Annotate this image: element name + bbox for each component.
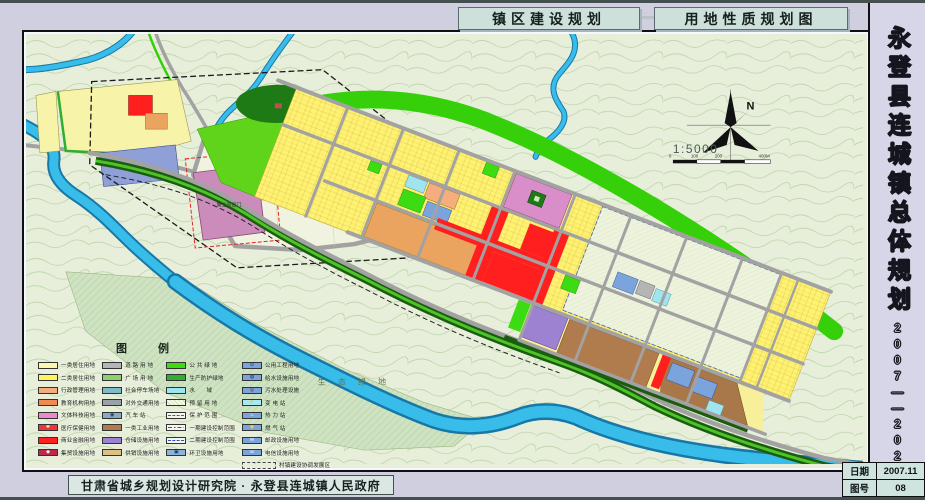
legend-item: ✚医疗保健用地 xyxy=(38,424,95,432)
legend-item: 教育机构用地 xyxy=(38,399,95,407)
svg-text:100: 100 xyxy=(691,153,699,158)
date-value: 2007.11 xyxy=(876,462,925,480)
legend-item: 社会停车场地 xyxy=(102,386,159,394)
legend-label: 供销设施用地 xyxy=(125,449,159,457)
legend-line-sample xyxy=(168,427,184,429)
legend-swatch xyxy=(102,374,122,381)
legend-swatch: ◉ xyxy=(102,412,122,419)
legend-glyph-icon: ◍ xyxy=(250,375,254,380)
legend-swatch: ◆ xyxy=(38,449,58,456)
legend-item: ⊙公用工程用地 xyxy=(242,361,330,369)
legend-item: ♨热 力 站 xyxy=(242,411,330,419)
credit-text: 甘肃省城乡规划设计研究院 · 永登县连城镇人民政府 xyxy=(81,477,381,494)
legend-glyph-icon: ☏ xyxy=(249,450,255,455)
legend-label: 邮政设施用地 xyxy=(265,436,299,444)
date-label: 日期 xyxy=(842,462,877,480)
legend-swatch xyxy=(166,424,186,431)
title-right-text: 用地性质规划图 xyxy=(685,9,818,29)
legend-label: 广 场 用 地 xyxy=(125,374,153,382)
legend-swatch xyxy=(242,462,276,469)
legend-title: 图 例 xyxy=(116,340,338,356)
legend-label: 一期建设控制范围 xyxy=(189,424,235,432)
title-left-text: 镇区建设规划 xyxy=(492,9,606,29)
legend-item: 一类工业用地 xyxy=(102,424,159,432)
legend-item: 一类居住用地 xyxy=(38,361,95,369)
legend-item: 预 留 用 地 xyxy=(166,399,235,407)
legend-label: 公 共 绿 地 xyxy=(189,361,217,369)
legend-swatch xyxy=(166,437,186,444)
legend-glyph-icon: ◆ xyxy=(46,450,50,455)
sheet-top-edge xyxy=(0,0,925,3)
legend-item: 生产防护绿地 xyxy=(166,374,235,382)
legend-glyph-icon: ✚ xyxy=(46,425,50,430)
legend-swatch xyxy=(166,399,186,406)
svg-text:200: 200 xyxy=(715,153,723,158)
legend-swatch: ⊙ xyxy=(242,362,262,369)
legend-item: 道 路 用 地 xyxy=(102,361,159,369)
legend-label: 村镇建设协调发展区 xyxy=(279,461,330,469)
legend-label: 商业金融用地 xyxy=(61,436,95,444)
legend-label: 燃 气 站 xyxy=(265,424,286,432)
legend-label: 行政管理用地 xyxy=(61,386,95,394)
legend-label: 生产防护绿地 xyxy=(189,374,223,382)
legend-label: 环卫设施用地 xyxy=(189,449,223,457)
legend-glyph-icon: ◉ xyxy=(250,425,254,430)
legend-item: ✉邮政设施用地 xyxy=(242,436,330,444)
legend-swatch xyxy=(102,362,122,369)
legend-label: 对外交通用地 xyxy=(125,399,159,407)
legend-label: 汽 车 站 xyxy=(125,411,146,419)
legend-columns: 一类居住用地二类居住用地行政管理用地教育机构用地文体科技用地✚医疗保健用地商业金… xyxy=(38,361,338,469)
legend-swatch: ♨ xyxy=(242,412,262,419)
drawing-sheet: 镇区建设规划 用地性质规划图 xyxy=(0,0,925,500)
legend-label: 教育机构用地 xyxy=(61,399,95,407)
legend-item: 二期建设控制范围 xyxy=(166,436,235,444)
legend-label: 仓储设施用地 xyxy=(125,436,159,444)
legend-swatch xyxy=(166,387,186,394)
legend-glyph-icon: ⊙ xyxy=(250,363,254,368)
legend-glyph-icon: ◉ xyxy=(110,413,114,418)
legend-label: 社会停车场地 xyxy=(125,386,159,394)
legend-item: 保 护 范 围 xyxy=(166,411,235,419)
legend-item: 文体科技用地 xyxy=(38,411,95,419)
legend-glyph-icon: ◎ xyxy=(250,388,254,393)
legend-item: 广 场 用 地 xyxy=(102,374,159,382)
legend-item: ⚡变 电 站 xyxy=(242,399,330,407)
sheet-number-value: 08 xyxy=(876,479,925,497)
legend-label: 热 力 站 xyxy=(265,411,286,419)
legend-item: 商业金融用地 xyxy=(38,436,95,444)
legend-swatch xyxy=(38,399,58,406)
legend-item: 村镇建设协调发展区 xyxy=(242,461,330,469)
legend-swatch: ◎ xyxy=(242,387,262,394)
legend-swatch xyxy=(38,374,58,381)
legend-swatch xyxy=(166,412,186,419)
legend-glyph-icon: ✉ xyxy=(250,438,254,443)
sidebar-plan-title: 永登县连城镇总体规划 xyxy=(881,26,915,316)
legend-swatch xyxy=(102,387,122,394)
legend-label: 公用工程用地 xyxy=(265,361,299,369)
legend-swatch xyxy=(38,437,58,444)
legend-item: 二类居住用地 xyxy=(38,374,95,382)
legend-item: ◎污水处理设施 xyxy=(242,386,330,394)
sidebar-plan-period: 2007——2020 xyxy=(891,321,905,481)
legend-swatch xyxy=(38,387,58,394)
legend-swatch xyxy=(102,399,122,406)
legend-label: 给水设施用地 xyxy=(265,374,299,382)
legend-swatch: ▣ xyxy=(166,449,186,456)
credit-box: 甘肃省城乡规划设计研究院 · 永登县连城镇人民政府 xyxy=(68,475,394,495)
legend-item: ◍给水设施用地 xyxy=(242,374,330,382)
legend-swatch xyxy=(166,362,186,369)
legend-item: ◆集贸设施用地 xyxy=(38,449,95,457)
legend-item: 行政管理用地 xyxy=(38,386,95,394)
legend-label: 预 留 用 地 xyxy=(189,399,217,407)
legend-swatch: ✉ xyxy=(242,437,262,444)
legend-item: ▣环卫设施用地 xyxy=(166,449,235,457)
title-left: 镇区建设规划 xyxy=(458,7,640,30)
legend-item: ◉汽 车 站 xyxy=(102,411,159,419)
legend-item: 对外交通用地 xyxy=(102,399,159,407)
legend-glyph-icon: ♨ xyxy=(250,413,254,418)
legend-column: 一类居住用地二类居住用地行政管理用地教育机构用地文体科技用地✚医疗保健用地商业金… xyxy=(38,361,95,469)
sheet-number-label: 图号 xyxy=(842,479,877,497)
legend-item: 公 共 绿 地 xyxy=(166,361,235,369)
legend-swatch: ✚ xyxy=(38,424,58,431)
legend-label: 水 域 xyxy=(189,386,212,394)
legend-line-sample xyxy=(168,415,184,416)
legend-item: 水 域 xyxy=(166,386,235,394)
legend-swatch: ◉ xyxy=(242,424,262,431)
legend-glyph-icon: ▣ xyxy=(174,450,179,455)
legend-column: ⊙公用工程用地◍给水设施用地◎污水处理设施⚡变 电 站♨热 力 站◉燃 气 站✉… xyxy=(242,361,330,469)
legend-glyph-icon: ⚡ xyxy=(249,400,255,405)
legend-item: 仓储设施用地 xyxy=(102,436,159,444)
legend-item: ◉燃 气 站 xyxy=(242,424,330,432)
title-block-sheet-row: 图号 08 xyxy=(843,480,925,497)
legend-label: 电信设施用地 xyxy=(265,449,299,457)
legend-label: 二期建设控制范围 xyxy=(189,436,235,444)
legend-label: 变 电 站 xyxy=(265,399,286,407)
title-block-date-row: 日期 2007.11 xyxy=(843,463,925,480)
legend-swatch: ☏ xyxy=(242,449,262,456)
title-connector xyxy=(638,16,654,19)
legend-label: 文体科技用地 xyxy=(61,411,95,419)
legend-swatch xyxy=(102,449,122,456)
svg-text:400M: 400M xyxy=(758,153,769,158)
legend-item: 供销设施用地 xyxy=(102,449,159,457)
north-label: N xyxy=(747,100,755,112)
legend-label: 集贸设施用地 xyxy=(61,449,95,457)
legend-swatch xyxy=(102,437,122,444)
legend-swatch xyxy=(38,412,58,419)
legend-label: 医疗保健用地 xyxy=(61,424,95,432)
legend-label: 道 路 用 地 xyxy=(125,361,153,369)
legend-swatch: ⚡ xyxy=(242,399,262,406)
yamen-label: 鲁土司衙门 xyxy=(217,201,242,208)
legend-label: 保 护 范 围 xyxy=(189,411,217,419)
legend: 图 例 一类居住用地二类居住用地行政管理用地教育机构用地文体科技用地✚医疗保健用… xyxy=(38,340,338,469)
legend-line-sample xyxy=(168,440,184,441)
legend-item: 一期建设控制范围 xyxy=(166,424,235,432)
legend-item: ☏电信设施用地 xyxy=(242,449,330,457)
sidebar: 永登县连城镇总体规划 2007——2020 xyxy=(868,0,925,500)
map-frame: N 1:5000 0 100 200 400M 鲁土司衙门 生 态 绿 地 图 … xyxy=(22,30,871,472)
legend-swatch: ◍ xyxy=(242,374,262,381)
legend-label: 一类居住用地 xyxy=(61,361,95,369)
title-right: 用地性质规划图 xyxy=(654,7,848,30)
legend-label: 污水处理设施 xyxy=(265,386,299,394)
legend-label: 一类工业用地 xyxy=(125,424,159,432)
title-block: 日期 2007.11 图号 08 xyxy=(843,463,925,497)
legend-label: 二类居住用地 xyxy=(61,374,95,382)
legend-column: 道 路 用 地广 场 用 地社会停车场地对外交通用地◉汽 车 站一类工业用地仓储… xyxy=(102,361,159,469)
legend-swatch xyxy=(38,362,58,369)
legend-swatch xyxy=(102,424,122,431)
legend-column: 公 共 绿 地生产防护绿地水 域预 留 用 地保 护 范 围一期建设控制范围二期… xyxy=(166,361,235,469)
legend-swatch xyxy=(166,374,186,381)
